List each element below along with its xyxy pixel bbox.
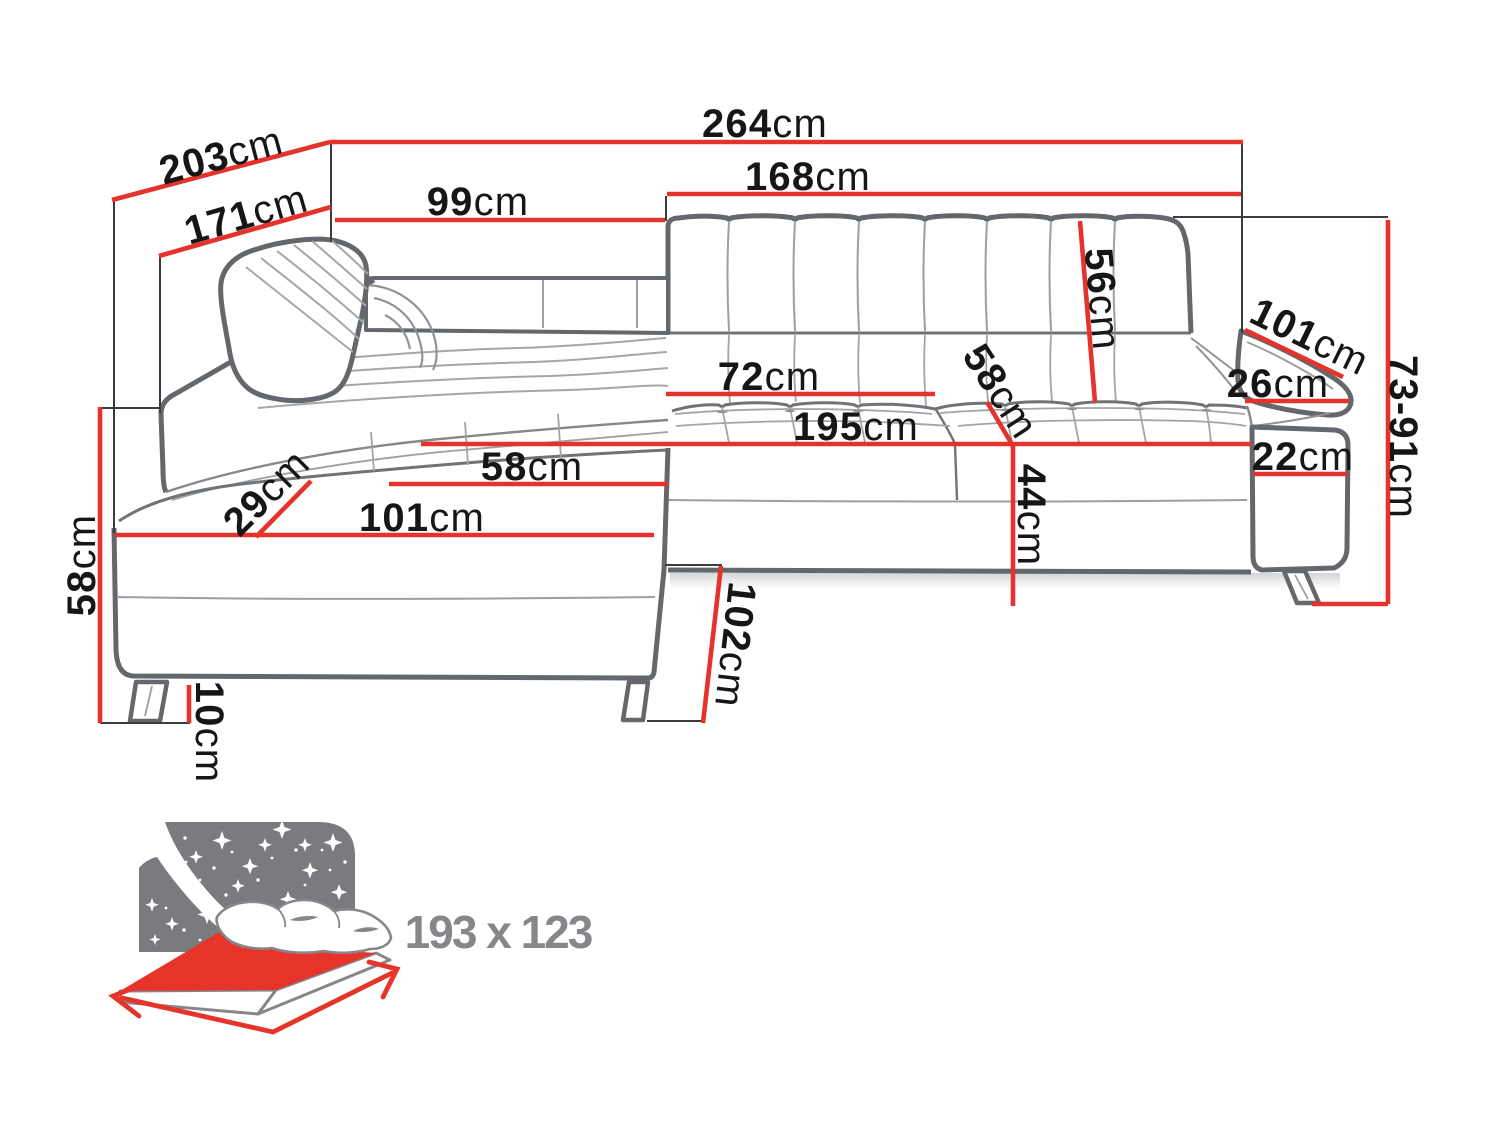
svg-text:58cm: 58cm xyxy=(60,514,104,617)
svg-text:58cm: 58cm xyxy=(481,445,584,489)
svg-text:22cm: 22cm xyxy=(1252,435,1355,479)
svg-text:99cm: 99cm xyxy=(427,180,530,224)
svg-text:195cm: 195cm xyxy=(793,405,919,449)
svg-text:10cm: 10cm xyxy=(187,681,231,784)
svg-text:56cm: 56cm xyxy=(1076,246,1129,352)
svg-text:168cm: 168cm xyxy=(745,155,871,199)
svg-text:72cm: 72cm xyxy=(718,355,821,399)
svg-text:73-91cm: 73-91cm xyxy=(1381,355,1425,519)
svg-text:193 x 123: 193 x 123 xyxy=(405,906,592,958)
svg-text:264cm: 264cm xyxy=(702,102,828,146)
svg-text:26cm: 26cm xyxy=(1227,362,1330,406)
svg-text:44cm: 44cm xyxy=(1009,464,1053,567)
svg-text:101cm: 101cm xyxy=(359,496,485,540)
